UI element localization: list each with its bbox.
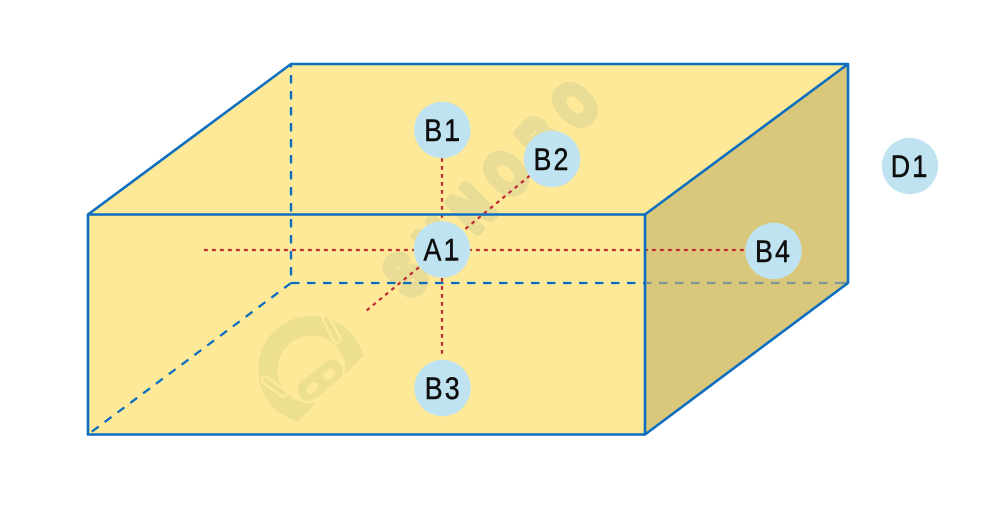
- svg-text:B3: B3: [425, 372, 462, 406]
- svg-text:D1: D1: [891, 150, 929, 184]
- svg-text:B4: B4: [755, 235, 792, 269]
- svg-text:B1: B1: [424, 114, 461, 148]
- svg-text:B2: B2: [534, 143, 571, 177]
- svg-text:A1: A1: [424, 234, 461, 268]
